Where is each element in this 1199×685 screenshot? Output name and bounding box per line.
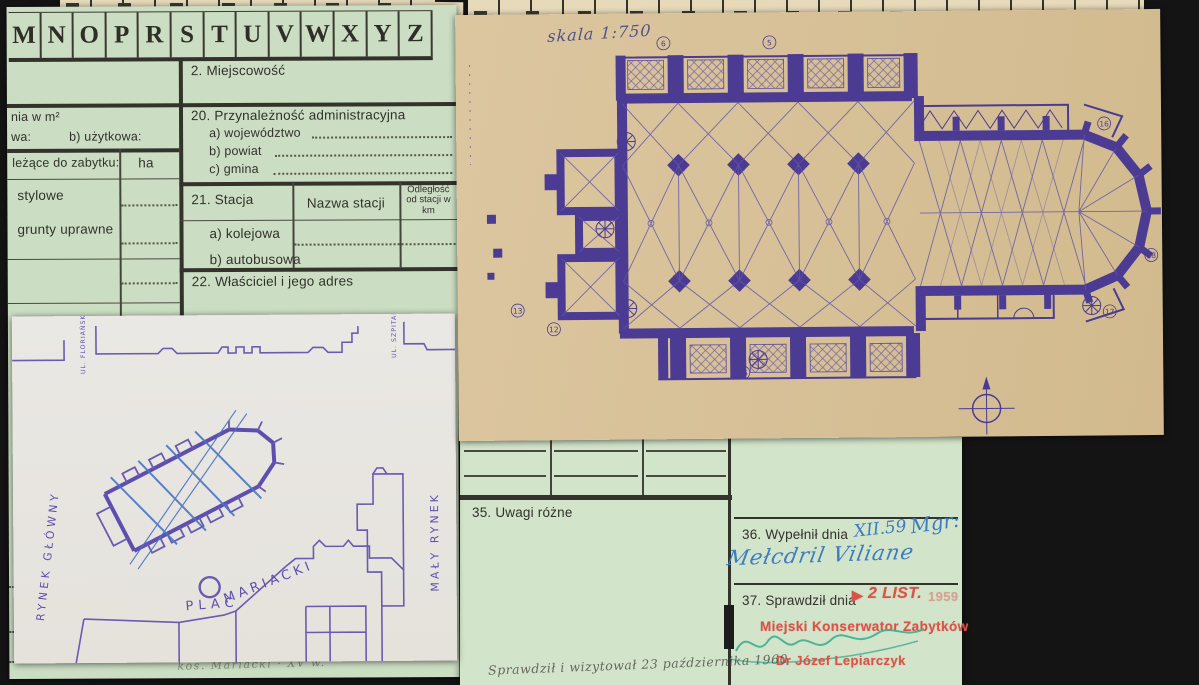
label-ul-szpitalna: UL. SZPITALNA bbox=[391, 313, 398, 357]
field-20b: b) powiat bbox=[209, 144, 262, 158]
grid-line bbox=[646, 475, 726, 477]
field-37-label: 37. Sprawdził dnia bbox=[742, 593, 856, 608]
annotation-number: 5 bbox=[767, 38, 772, 47]
person-stamp: Dr Józef Lepiarczyk bbox=[776, 653, 906, 668]
verification-card: 35. Uwagi różne 36. Wypełnił dnia XII.59… bbox=[460, 437, 962, 685]
index-letter: P bbox=[106, 12, 139, 57]
site-sketch-sheet: RYNEK GŁÓWNY MAŁY RYNEK UL. FLORIAŃSKA U… bbox=[12, 313, 457, 663]
label-ul-florianska: UL. FLORIAŃSKA bbox=[78, 313, 87, 374]
grid-divider bbox=[642, 439, 644, 495]
handwritten-signature-name: Mełcdril Viliane bbox=[725, 540, 916, 570]
row-autobusowa: b) autobusowa bbox=[210, 252, 301, 267]
index-letter: N bbox=[41, 13, 74, 58]
col-odleglosc: Odległość od stacji w km bbox=[401, 185, 455, 216]
frontage-middle bbox=[96, 324, 358, 354]
annotation-number: 16 bbox=[1099, 119, 1109, 128]
field-2-label: 2. Miejscowość bbox=[191, 63, 285, 78]
index-letter: O bbox=[74, 13, 107, 58]
rule bbox=[460, 495, 732, 500]
index-letter: V bbox=[269, 12, 302, 57]
north-arrow bbox=[958, 376, 1015, 434]
building-tall bbox=[357, 474, 404, 606]
field-area-b: b) użytkowa: bbox=[69, 129, 142, 143]
dotted-line bbox=[295, 243, 456, 246]
field-area-a: wa: bbox=[11, 130, 31, 144]
field-20-label: 20. Przynależność administracyjna bbox=[191, 107, 406, 123]
well-circle bbox=[200, 577, 220, 597]
field-20a: a) województwo bbox=[209, 126, 301, 140]
church-floor-plan: 5 6 13 12 15 16 17 18 bbox=[455, 9, 1164, 441]
dotted-line bbox=[121, 204, 177, 206]
rule bbox=[7, 148, 179, 153]
door-arc bbox=[1014, 308, 1034, 318]
label-maly-rynek: MAŁY RYNEK bbox=[428, 492, 442, 592]
index-letter: M bbox=[9, 13, 42, 58]
buildings-right bbox=[285, 540, 404, 662]
grid-line bbox=[464, 475, 546, 477]
grid-divider bbox=[550, 439, 552, 495]
sacristy-gables bbox=[918, 110, 1062, 129]
alphabet-index: M N O P R S T U V W X Y Z bbox=[9, 10, 433, 62]
rule bbox=[179, 219, 457, 221]
grid-line bbox=[554, 450, 638, 452]
dotted-line bbox=[312, 136, 452, 139]
south-rooms-dividers bbox=[958, 295, 998, 318]
field-36-label: 36. Wypełnił dnia bbox=[742, 527, 848, 542]
label-rynek-glowny: RYNEK GŁÓWNY bbox=[34, 490, 62, 621]
rule bbox=[180, 267, 458, 272]
grid-line bbox=[554, 475, 638, 477]
row-grunty-uprawne: grunty uprawne bbox=[17, 222, 113, 237]
field-belong-label: leżące do zabytku: bbox=[12, 155, 119, 169]
rule bbox=[734, 583, 958, 585]
rule bbox=[8, 302, 180, 304]
index-letter: U bbox=[237, 12, 270, 57]
rule bbox=[7, 178, 179, 180]
floor-plan-sheet: skala 1:750 bbox=[455, 9, 1164, 441]
annotation-number: 15 bbox=[738, 369, 748, 378]
building-tall-detail bbox=[373, 468, 387, 474]
handwritten-title: Mgr: bbox=[909, 508, 961, 539]
margin-ticks bbox=[470, 65, 471, 165]
dotted-line bbox=[122, 242, 178, 244]
pencil-note-card-b: Sprawdził i wizytował 23 października 19… bbox=[488, 651, 788, 678]
field-21-label: 21. Stacja bbox=[191, 192, 253, 207]
index-letter: W bbox=[302, 12, 335, 57]
column-divider bbox=[179, 58, 184, 324]
field-area-label: nia w m² bbox=[11, 110, 60, 124]
field-35-label: 35. Uwagi różne bbox=[472, 505, 573, 520]
index-letter: S bbox=[172, 12, 205, 57]
frontage-right bbox=[404, 321, 455, 349]
annotation-number: 6 bbox=[661, 39, 666, 48]
dotted-line bbox=[273, 172, 452, 175]
site-sketch-drawing: RYNEK GŁÓWNY MAŁY RYNEK UL. FLORIAŃSKA U… bbox=[12, 313, 457, 663]
annotation-number: 18 bbox=[1146, 251, 1156, 260]
field-20c: c) gmina bbox=[209, 162, 259, 176]
buildings-right-inner bbox=[306, 606, 366, 661]
col-nazwa-stacji: Nazwa stacji bbox=[292, 195, 399, 210]
scanned-archive-sheet: M N O P R S T U V W X Y Z bbox=[0, 0, 1199, 685]
boundary-drops bbox=[76, 611, 236, 663]
label-mariacki: MARIACKI bbox=[222, 558, 316, 607]
stamp-arrow-icon: ▶ bbox=[852, 587, 863, 604]
index-letter: Y bbox=[367, 11, 400, 56]
frontage-left bbox=[12, 340, 64, 360]
ha-column-divider bbox=[119, 148, 122, 324]
ha-column-header: ha bbox=[138, 155, 153, 170]
date-stamp: 2 LIST. bbox=[868, 585, 922, 603]
rule bbox=[8, 258, 180, 260]
grid-line bbox=[464, 450, 546, 452]
annotation-number: 12 bbox=[549, 325, 559, 334]
field-22-label: 22. Właściciel i jego adres bbox=[192, 273, 354, 289]
index-letter: X bbox=[335, 11, 368, 56]
index-letter: Z bbox=[400, 11, 433, 56]
dotted-line bbox=[275, 154, 452, 157]
church-sketch bbox=[84, 396, 305, 574]
annotation-number: 13 bbox=[513, 307, 523, 316]
row-kolejowa: a) kolejowa bbox=[209, 226, 280, 241]
row-stylowe: stylowe bbox=[17, 188, 63, 203]
annotation-number: 17 bbox=[1105, 307, 1115, 316]
index-letter: T bbox=[204, 12, 237, 57]
grid-line bbox=[646, 450, 726, 452]
dotted-line bbox=[122, 282, 178, 284]
index-letter: R bbox=[139, 12, 172, 57]
handwritten-date: XII.59 bbox=[853, 516, 907, 541]
date-stamp-year: 1959 bbox=[928, 589, 959, 604]
